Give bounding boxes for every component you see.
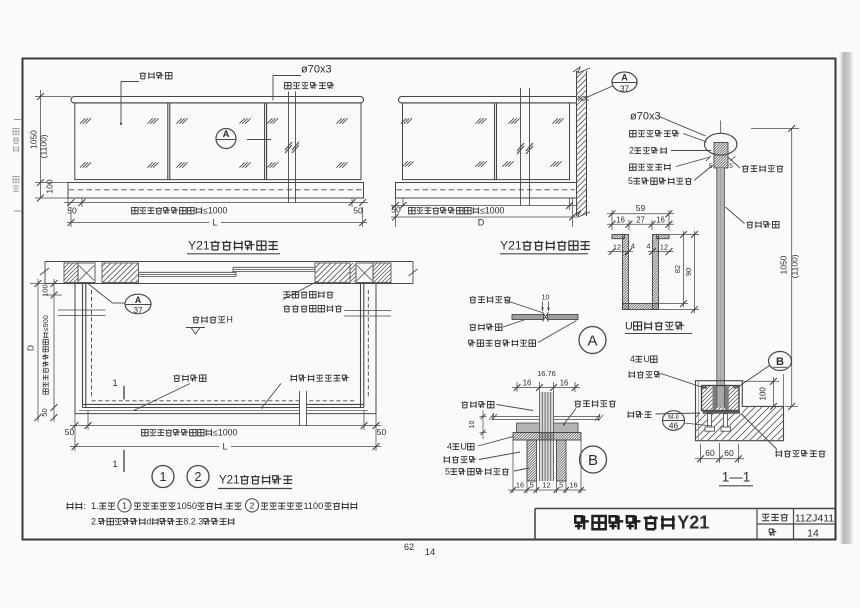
svg-text:100: 100 xyxy=(45,179,55,193)
svg-text:A: A xyxy=(223,129,230,140)
svg-text:10: 10 xyxy=(469,421,476,429)
svg-text:12: 12 xyxy=(660,242,668,251)
svg-text:14: 14 xyxy=(807,528,819,540)
svg-text:1050: 1050 xyxy=(779,255,789,274)
svg-text:A: A xyxy=(621,73,628,83)
svg-text:≤1000: ≤1000 xyxy=(203,206,228,216)
svg-text:50: 50 xyxy=(67,206,77,216)
svg-text:5: 5 xyxy=(729,163,733,170)
svg-text:50: 50 xyxy=(353,206,363,216)
svg-text:2: 2 xyxy=(195,470,202,484)
svg-text:16.76: 16.76 xyxy=(537,369,556,378)
svg-text:≤900: ≤900 xyxy=(41,315,50,331)
svg-text:90: 90 xyxy=(684,268,693,276)
svg-text:14: 14 xyxy=(425,547,436,558)
svg-text:60: 60 xyxy=(724,448,734,458)
svg-text:5: 5 xyxy=(445,467,450,477)
svg-text:U: U xyxy=(461,442,467,452)
svg-text:50: 50 xyxy=(391,205,401,215)
svg-text:4: 4 xyxy=(631,242,635,251)
svg-text:,: , xyxy=(223,501,226,511)
svg-text:1050: 1050 xyxy=(177,501,197,511)
svg-text:4: 4 xyxy=(646,242,650,251)
svg-text:B: B xyxy=(588,452,598,469)
svg-text:12: 12 xyxy=(542,481,550,490)
svg-text:≤1000: ≤1000 xyxy=(213,428,238,438)
svg-text:Y21: Y21 xyxy=(219,475,239,487)
svg-text:82: 82 xyxy=(673,265,682,273)
svg-text:50: 50 xyxy=(65,427,75,437)
svg-text:16: 16 xyxy=(656,215,665,224)
svg-text:4: 4 xyxy=(630,354,635,364)
svg-text:4: 4 xyxy=(447,442,452,452)
svg-text:16: 16 xyxy=(569,481,577,490)
svg-text:10: 10 xyxy=(542,295,550,302)
svg-text:U: U xyxy=(625,321,633,333)
svg-text:D: D xyxy=(26,345,36,351)
svg-text:5: 5 xyxy=(628,176,633,186)
svg-text:8.2.3: 8.2.3 xyxy=(183,517,203,527)
svg-text:1100: 1100 xyxy=(304,501,324,511)
svg-text:ø70x3: ø70x3 xyxy=(301,64,332,76)
svg-text:37: 37 xyxy=(620,85,630,94)
svg-text:A: A xyxy=(135,295,142,305)
svg-text:62: 62 xyxy=(404,542,414,552)
svg-text:L: L xyxy=(223,442,228,452)
svg-text:A: A xyxy=(587,333,597,350)
svg-text:16: 16 xyxy=(616,215,625,224)
svg-text:U: U xyxy=(644,354,650,364)
svg-text:16: 16 xyxy=(560,378,569,387)
svg-text:59: 59 xyxy=(636,203,646,213)
svg-text:2: 2 xyxy=(250,501,255,511)
svg-text:1050: 1050 xyxy=(29,130,39,149)
svg-text:1: 1 xyxy=(122,501,127,511)
svg-text:L: L xyxy=(213,218,218,228)
svg-text::: : xyxy=(84,501,87,511)
svg-text:1: 1 xyxy=(113,459,118,469)
svg-text:46: 46 xyxy=(669,421,679,431)
svg-text:100: 100 xyxy=(41,284,50,297)
svg-text:Y21: Y21 xyxy=(677,513,709,533)
svg-text:50: 50 xyxy=(377,427,387,437)
svg-text:12: 12 xyxy=(613,242,621,251)
svg-text:2.: 2. xyxy=(91,517,98,527)
svg-text:D: D xyxy=(478,218,485,228)
svg-text:11ZJ411: 11ZJ411 xyxy=(795,513,834,525)
svg-text:(1100): (1100) xyxy=(39,134,49,158)
svg-text:H: H xyxy=(227,315,233,325)
svg-text:16: 16 xyxy=(523,378,532,387)
svg-text:37: 37 xyxy=(133,306,143,315)
svg-text:16: 16 xyxy=(516,481,524,490)
svg-text:5: 5 xyxy=(559,481,563,490)
svg-text:B: B xyxy=(776,356,784,368)
svg-text:1: 1 xyxy=(113,378,118,388)
svg-text:1—1: 1—1 xyxy=(722,470,751,485)
svg-text:Y21: Y21 xyxy=(188,239,210,253)
svg-text:2: 2 xyxy=(629,146,634,156)
svg-text:(1100): (1100) xyxy=(790,254,800,278)
svg-text:Y21: Y21 xyxy=(500,239,522,253)
svg-text:100: 100 xyxy=(759,387,768,401)
svg-text:≤1000: ≤1000 xyxy=(480,206,505,216)
svg-text:5: 5 xyxy=(530,481,534,490)
svg-text:60: 60 xyxy=(705,448,715,458)
svg-text:50: 50 xyxy=(40,408,49,416)
svg-text:1: 1 xyxy=(160,470,167,484)
svg-text:ø70x3: ø70x3 xyxy=(630,111,661,123)
svg-text:1.: 1. xyxy=(91,501,99,511)
svg-text:27: 27 xyxy=(636,215,645,224)
svg-text:d: d xyxy=(146,517,151,527)
